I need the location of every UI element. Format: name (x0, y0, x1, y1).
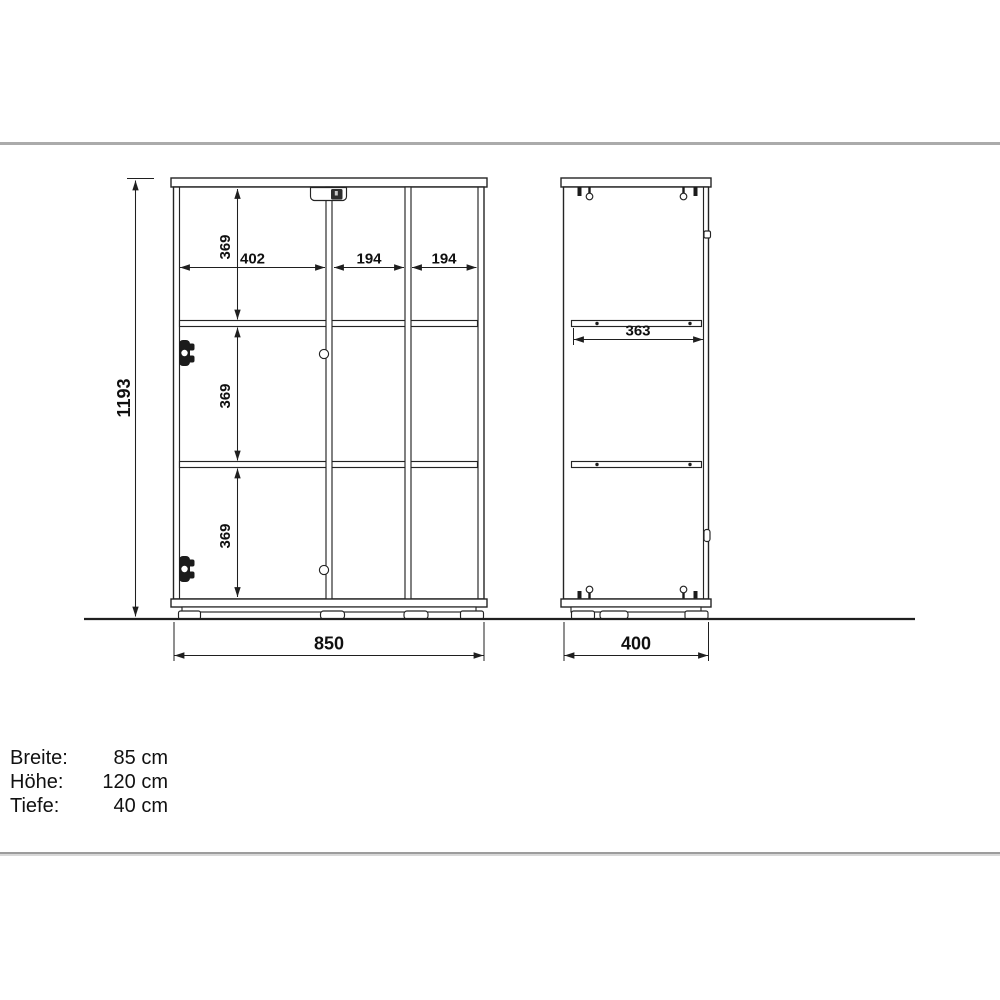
product-specs: Breite: 85 cm Höhe: 120 cm Tiefe: 40 cm (10, 746, 168, 818)
shelf-pin-icon (688, 463, 691, 466)
keyhole-icon (335, 191, 338, 196)
dim-label-total-depth: 400 (621, 634, 651, 654)
side-top-panel (561, 178, 711, 187)
spec-value: 85 cm (102, 746, 168, 770)
dim-label-total-width: 850 (314, 634, 344, 654)
dim-label-col-left: 402 (240, 251, 265, 268)
shelf-pin-icon (595, 322, 598, 325)
front-divider-center (326, 187, 332, 599)
dim-label-col-right: 194 (431, 251, 457, 268)
screw-head-icon (586, 193, 593, 200)
side-fitting-upper (704, 231, 711, 238)
front-divider-right (405, 187, 411, 599)
dim-label-col-middle: 194 (356, 251, 382, 268)
side-carcass (564, 187, 709, 599)
side-view (561, 178, 711, 619)
front-top-panel (171, 178, 487, 187)
spec-row-width: Breite: 85 cm (10, 746, 168, 770)
shelf-pin-icon (688, 322, 691, 325)
front-foot-3 (404, 611, 428, 619)
screw-head-icon (680, 586, 687, 593)
spec-label: Tiefe: (10, 794, 102, 818)
screw-head-icon (586, 586, 593, 593)
shelf-pin-icon (595, 463, 598, 466)
side-handle-knob (704, 530, 710, 542)
door-knob-upper (319, 349, 328, 358)
side-bottom-panel (561, 599, 711, 607)
spec-value: 120 cm (102, 770, 168, 794)
furniture-dimension-drawing: 1193 369 369 369 402 194 194 850 (0, 0, 1000, 1000)
spec-label: Breite: (10, 746, 102, 770)
dim-label-shelf-depth: 363 (625, 323, 650, 340)
door-knob-lower (319, 565, 328, 574)
screw-head-icon (680, 193, 687, 200)
side-shelf-lower (572, 462, 702, 468)
spec-row-height: Höhe: 120 cm (10, 770, 168, 794)
dim-label-row-middle: 369 (217, 383, 234, 408)
dim-label-total-height: 1193 (114, 378, 134, 417)
front-bottom-panel (171, 599, 487, 607)
spec-row-depth: Tiefe: 40 cm (10, 794, 168, 818)
technical-drawing-page: 1193 369 369 369 402 194 194 850 (0, 0, 1000, 1000)
front-foot-2 (321, 611, 345, 619)
side-foot-2 (685, 611, 708, 619)
front-foot-1 (179, 611, 201, 619)
side-foot-1 (572, 611, 595, 619)
bottom-divider-rule (0, 852, 1000, 856)
dim-label-row-bottom: 369 (217, 523, 234, 548)
side-foot-glide (600, 611, 628, 619)
front-foot-4 (461, 611, 484, 619)
spec-value: 40 cm (102, 794, 168, 818)
spec-label: Höhe: (10, 770, 102, 794)
dim-label-row-top: 369 (217, 234, 234, 259)
